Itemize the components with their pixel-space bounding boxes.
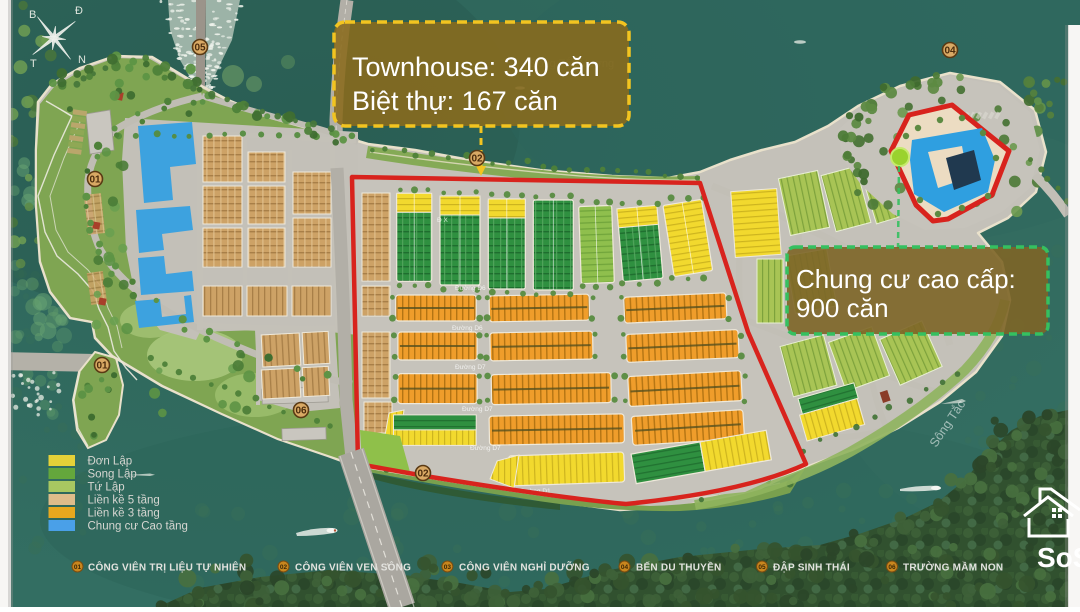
- svg-text:01: 01: [89, 174, 101, 185]
- svg-text:Đơn Lập: Đơn Lập: [88, 456, 133, 468]
- svg-text:Đ X: Đ X: [437, 217, 449, 224]
- svg-text:Đường D6: Đường D6: [452, 325, 483, 332]
- svg-text:Chung cư Cao tầng: Chung cư Cao tầng: [88, 521, 188, 533]
- svg-text:04: 04: [944, 45, 956, 56]
- svg-text:900 căn: 900 căn: [796, 293, 889, 323]
- svg-text:Đường D7: Đường D7: [470, 445, 501, 452]
- svg-text:05: 05: [758, 564, 766, 571]
- svg-text:Chung cư cao cấp:: Chung cư cao cấp:: [796, 264, 1016, 294]
- svg-text:06: 06: [295, 405, 307, 416]
- svg-text:03: 03: [444, 564, 452, 571]
- svg-text:CÔNG VIÊN TRỊ LIỆU TỰ NHIÊN: CÔNG VIÊN TRỊ LIỆU TỰ NHIÊN: [88, 561, 246, 574]
- svg-text:Đường D7: Đường D7: [455, 364, 486, 371]
- svg-text:Liền kề 5 tầng: Liền kề 5 tầng: [88, 495, 160, 507]
- svg-text:CÔNG VIÊN NGHỈ DƯỠNG: CÔNG VIÊN NGHỈ DƯỠNG: [459, 561, 590, 574]
- svg-text:05: 05: [194, 42, 206, 53]
- svg-text:02: 02: [280, 564, 288, 571]
- svg-text:ĐẬP SINH THÁI: ĐẬP SINH THÁI: [773, 561, 850, 574]
- svg-text:06: 06: [888, 564, 896, 571]
- svg-text:01: 01: [74, 564, 82, 571]
- svg-text:Biệt thự: 167 căn: Biệt thự: 167 căn: [352, 86, 558, 116]
- svg-text:Song Lập: Song Lập: [88, 469, 137, 481]
- svg-text:TRƯỜNG MẦM NON: TRƯỜNG MẦM NON: [903, 561, 1003, 574]
- svg-text:Đường D6: Đường D6: [455, 285, 486, 292]
- svg-text:01: 01: [96, 360, 108, 371]
- svg-text:Tứ Lập: Tứ Lập: [88, 482, 125, 494]
- svg-text:SoS: SoS: [1037, 542, 1080, 573]
- svg-text:CÔNG VIÊN VEN SÔNG: CÔNG VIÊN VEN SÔNG: [295, 561, 411, 574]
- svg-text:Đường D7: Đường D7: [462, 406, 493, 413]
- svg-text:Liền kề 3 tầng: Liền kề 3 tầng: [88, 508, 160, 520]
- svg-text:N: N: [78, 54, 86, 66]
- svg-text:02: 02: [471, 153, 483, 164]
- svg-text:04: 04: [621, 564, 629, 571]
- svg-text:B: B: [29, 9, 36, 21]
- svg-text:Đ: Đ: [75, 5, 83, 17]
- svg-text:BẾN DU THUYỀN: BẾN DU THUYỀN: [636, 561, 721, 574]
- svg-text:Townhouse: 340 căn: Townhouse: 340 căn: [352, 52, 600, 82]
- svg-text:02: 02: [417, 468, 429, 479]
- svg-text:T: T: [30, 58, 37, 70]
